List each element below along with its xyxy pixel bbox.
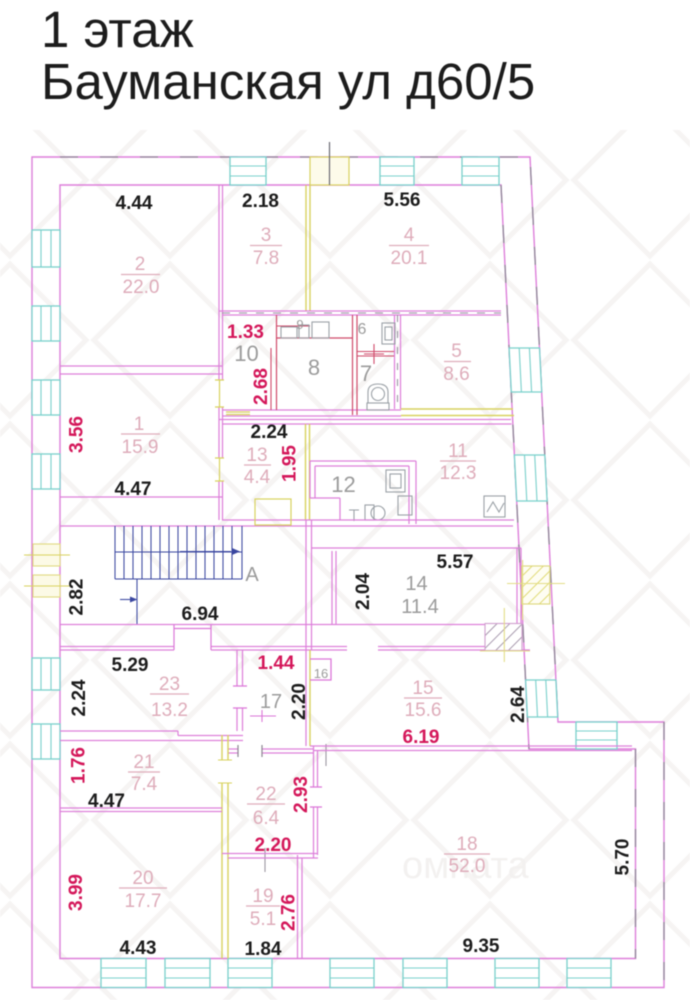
svg-text:2: 2 (135, 254, 146, 275)
svg-text:13.2: 13.2 (151, 700, 188, 721)
svg-text:10: 10 (234, 341, 258, 366)
svg-text:13: 13 (246, 445, 267, 466)
svg-text:2.04: 2.04 (353, 573, 374, 610)
svg-text:2.20: 2.20 (255, 835, 292, 856)
svg-text:3: 3 (261, 225, 272, 246)
svg-text:6.4: 6.4 (253, 808, 280, 829)
svg-text:7.4: 7.4 (131, 774, 158, 795)
svg-text:7.8: 7.8 (253, 248, 279, 269)
svg-text:6: 6 (358, 321, 367, 338)
svg-text:5: 5 (451, 341, 462, 362)
svg-text:22: 22 (255, 784, 276, 805)
svg-text:8.6: 8.6 (443, 364, 469, 385)
svg-text:2.93: 2.93 (291, 776, 312, 813)
svg-text:3.99: 3.99 (66, 874, 87, 911)
svg-text:1.44: 1.44 (258, 653, 295, 674)
svg-text:8: 8 (308, 355, 320, 380)
svg-text:2.64: 2.64 (508, 686, 529, 723)
svg-text:6.19: 6.19 (403, 727, 440, 748)
svg-text:4.4: 4.4 (244, 467, 271, 488)
svg-text:11: 11 (448, 441, 468, 462)
svg-text:2.68: 2.68 (251, 368, 272, 405)
svg-text:4.47: 4.47 (115, 479, 152, 500)
svg-text:2.76: 2.76 (279, 894, 300, 931)
svg-text:17: 17 (260, 691, 282, 713)
svg-text:11.4: 11.4 (401, 596, 438, 618)
svg-text:23: 23 (159, 674, 180, 695)
svg-text:22.0: 22.0 (123, 277, 160, 298)
svg-text:5.57: 5.57 (437, 552, 474, 573)
svg-text:4.44: 4.44 (116, 193, 153, 214)
svg-text:14: 14 (405, 573, 427, 595)
svg-text:9: 9 (296, 317, 303, 332)
svg-text:2.24: 2.24 (69, 679, 90, 716)
svg-text:3.56: 3.56 (67, 416, 88, 453)
svg-text:1.84: 1.84 (245, 939, 282, 960)
svg-text:5.1: 5.1 (250, 909, 276, 930)
svg-text:52.0: 52.0 (449, 856, 486, 877)
svg-text:15.6: 15.6 (405, 700, 442, 721)
svg-text:18: 18 (456, 834, 477, 855)
svg-text:16: 16 (314, 666, 328, 681)
svg-text:9.35: 9.35 (463, 936, 500, 957)
svg-text:17.7: 17.7 (125, 891, 162, 912)
svg-text:2.18: 2.18 (242, 191, 279, 212)
svg-text:20.1: 20.1 (391, 248, 428, 269)
svg-text:5.56: 5.56 (384, 190, 421, 211)
svg-text:5.29: 5.29 (112, 655, 149, 676)
svg-text:2.20: 2.20 (289, 683, 310, 720)
svg-text:7: 7 (360, 361, 372, 386)
svg-text:5.70: 5.70 (613, 839, 634, 876)
svg-text:4.43: 4.43 (120, 938, 157, 959)
svg-text:6.94: 6.94 (182, 604, 219, 625)
svg-text:2.24: 2.24 (251, 422, 288, 443)
svg-text:15: 15 (412, 678, 433, 699)
svg-text:1.95: 1.95 (280, 445, 301, 482)
svg-text:1.76: 1.76 (69, 747, 90, 784)
svg-text:19: 19 (252, 886, 273, 907)
svg-text:4.47: 4.47 (88, 791, 125, 812)
svg-text:1: 1 (134, 414, 145, 435)
svg-text:15.9: 15.9 (122, 437, 159, 458)
svg-text:1.33: 1.33 (227, 322, 264, 343)
svg-text:21: 21 (133, 752, 154, 773)
svg-text:А: А (245, 564, 259, 586)
svg-text:12: 12 (331, 472, 355, 497)
svg-text:12.3: 12.3 (440, 463, 477, 484)
svg-text:4: 4 (404, 225, 415, 246)
svg-text:2.82: 2.82 (67, 579, 88, 616)
svg-text:20: 20 (132, 868, 153, 889)
